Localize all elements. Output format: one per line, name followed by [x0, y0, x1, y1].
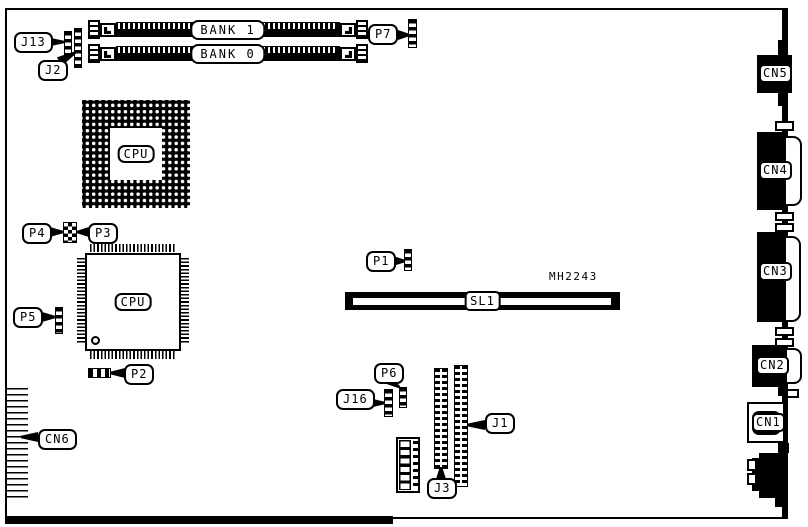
bank0-label: BANK 0: [190, 44, 265, 64]
dip-connector: [396, 437, 420, 493]
bracket-tab: [775, 121, 794, 131]
cn2-label: CN2: [756, 356, 789, 375]
j1-connector: [454, 365, 468, 487]
j13-header: [64, 31, 72, 55]
qfp-pins-top: [90, 244, 176, 252]
simm-socket-bank0: BANK 0: [88, 44, 368, 63]
callout-p1: P1: [366, 251, 396, 272]
qfp-pins-right: [181, 258, 189, 344]
dip-big-pads: [399, 440, 411, 490]
simm-endcap: [88, 20, 100, 39]
cpu-qfp-label: CPU: [115, 293, 152, 311]
motherboard-diagram: BANK 1 BANK 0 J13 J2 P7 CPU P4 P3 CPU P5: [0, 0, 808, 527]
bank1-label: BANK 1: [190, 20, 265, 40]
bracket-stub: [778, 443, 789, 453]
j2-header: [74, 28, 82, 68]
qfp-cpu-chip: CPU: [85, 253, 181, 351]
callout-cn6: CN6: [38, 429, 77, 450]
cn5-mount-tab: [778, 40, 787, 56]
part-number-text: MH2243: [549, 270, 598, 283]
callout-j16: J16: [336, 389, 375, 410]
pin1-indicator: [91, 336, 100, 345]
board-bottom-edge: [5, 516, 393, 524]
cn5-label: CN5: [759, 64, 792, 83]
simm-latch: [100, 23, 116, 37]
p2-header: [88, 368, 111, 378]
simm-latch: [340, 47, 356, 61]
simm-endcap: [356, 20, 368, 39]
simm-endcap: [88, 44, 100, 63]
cn3-label: CN3: [759, 262, 792, 281]
simm-endcap: [356, 44, 368, 63]
simm-latch: [100, 47, 116, 61]
callout-p2: P2: [124, 364, 154, 385]
j3-connector: [434, 368, 448, 469]
callout-p5: P5: [13, 307, 43, 328]
cn1-label: CN1: [752, 413, 785, 432]
p5-header: [55, 307, 63, 334]
callout-p4: P4: [22, 223, 52, 244]
sl1-label: SL1: [464, 291, 501, 311]
bracket-tab: [786, 389, 799, 398]
p1-header: [404, 249, 412, 271]
j16-header: [384, 389, 393, 417]
qfp-pins-bottom: [90, 351, 176, 359]
sl1-slot: SL1: [345, 292, 620, 310]
callout-j1: J1: [485, 413, 515, 434]
callout-p6: P6: [374, 363, 404, 384]
pga-cpu-socket: CPU: [82, 100, 190, 208]
bracket-tab: [775, 338, 794, 347]
cpu-pga-label: CPU: [118, 145, 155, 163]
cn5-mount-tab: [778, 93, 787, 106]
audio-jack-block: [759, 453, 788, 498]
bracket-tab: [775, 212, 794, 221]
qfp-pins-left: [77, 258, 85, 344]
callout-j3: J3: [427, 478, 457, 499]
cn4-label: CN4: [759, 161, 792, 180]
callout-j2: J2: [38, 60, 68, 81]
p4-p3-header: [63, 222, 77, 243]
cn6-edge-connector: [5, 388, 28, 501]
dip-small-pads: [413, 441, 418, 489]
simm-latch: [340, 23, 356, 37]
audio-jack-port: [747, 459, 757, 471]
callout-j13: J13: [14, 32, 53, 53]
p7-header: [408, 19, 417, 48]
p6-header: [399, 387, 407, 408]
audio-jack-port: [747, 473, 757, 485]
simm-socket-bank1: BANK 1: [88, 20, 368, 39]
callout-p7: P7: [368, 24, 398, 45]
bracket-tab: [775, 327, 794, 336]
callout-p3: P3: [88, 223, 118, 244]
bracket-tab: [775, 223, 794, 232]
